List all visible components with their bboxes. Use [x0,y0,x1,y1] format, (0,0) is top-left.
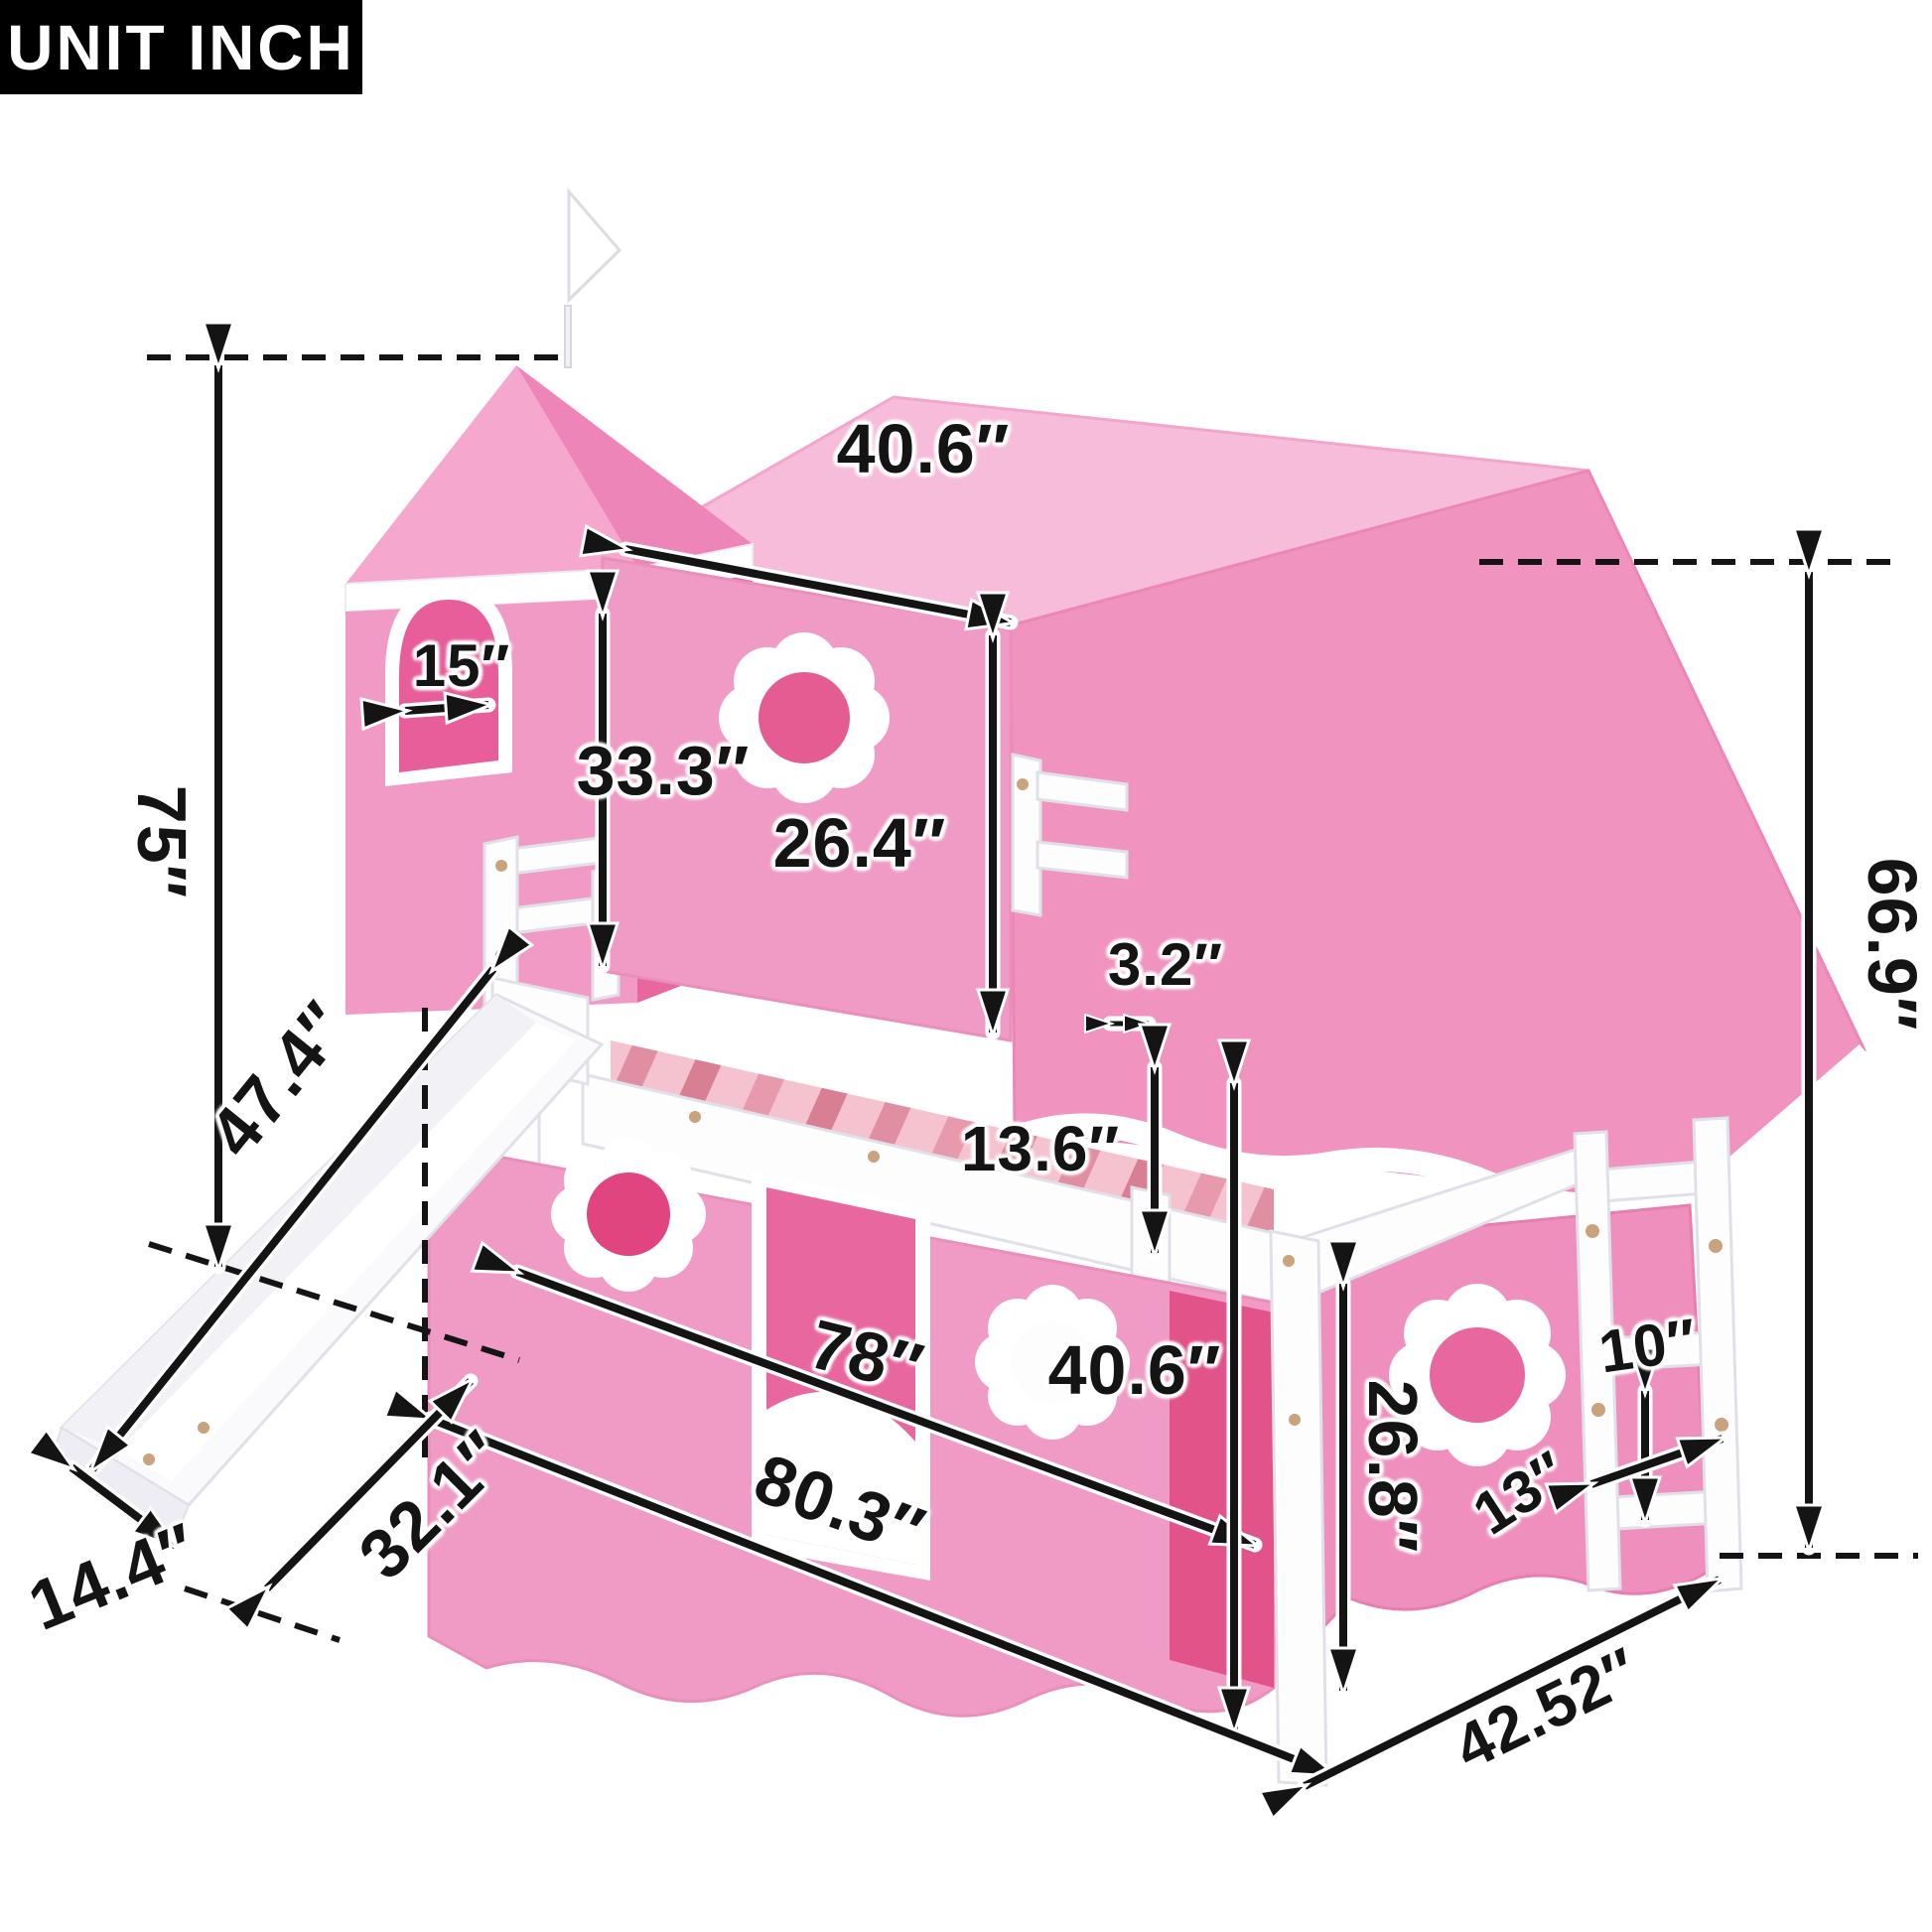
dim-label-tent-top-width: 40.6″ [837,414,1011,483]
dim-label-tent-opening-height: 26.4″ [773,808,947,878]
dim-label-under-bed-curtain-height: 40.6″ [1048,1335,1222,1405]
dim-label-overall-height: 75″ [127,785,197,898]
bed-illustration [0,0,1932,1932]
unit-label: UNIT INCH [0,0,362,94]
dimension-diagram: UNIT INCH 40.6″ 15″ 75″ 33.3″ 26.4″ 3.2″… [0,0,1932,1932]
dim-label-guardrail-height: 13.6″ [961,1117,1120,1180]
dim-label-tower-window: 15″ [413,636,510,696]
dim-label-frame-height: 66.9″ [1858,858,1927,1032]
front-right-post [1271,1231,1326,1785]
dim-label-front-curtain-height: 33.3″ [577,736,751,805]
dim-label-slat-thickness: 3.2″ [1108,935,1223,995]
dim-label-ladder-rung-spacing: 10″ [1595,1310,1701,1382]
flag-icon [565,192,620,367]
dim-label-lower-curtain-height: 26.8″ [1358,1380,1428,1554]
flower-cutout [551,1137,706,1292]
